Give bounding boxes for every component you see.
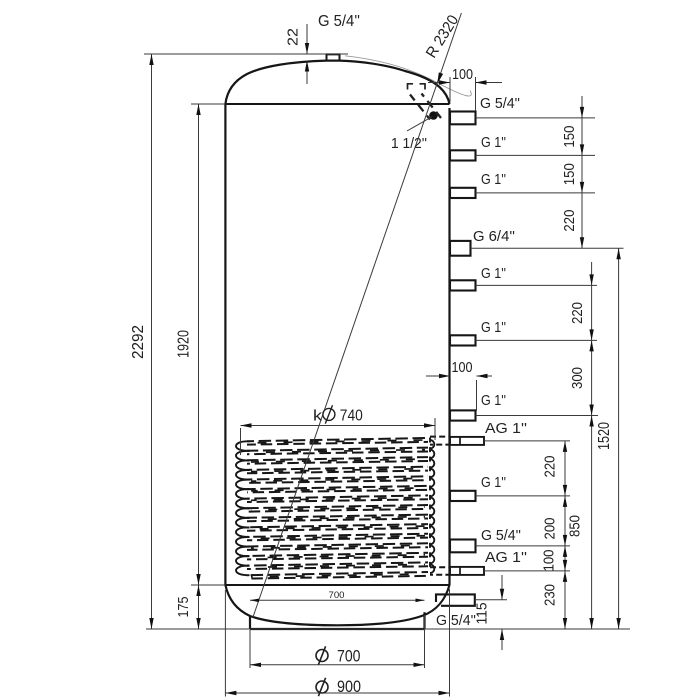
svg-text:G 1'': G 1'' <box>481 171 506 188</box>
svg-text:G 6/4'': G 6/4'' <box>473 228 515 245</box>
svg-text:300: 300 <box>569 367 586 389</box>
svg-text:G 1'': G 1'' <box>481 134 506 151</box>
svg-text:1920: 1920 <box>176 330 193 358</box>
svg-text:1 1/2'': 1 1/2'' <box>391 135 427 152</box>
svg-text:200: 200 <box>542 518 559 540</box>
svg-text:k: k <box>313 408 323 425</box>
svg-text:220: 220 <box>569 302 586 324</box>
svg-text:220: 220 <box>561 210 578 232</box>
svg-text:G 5/4'': G 5/4'' <box>480 95 520 112</box>
svg-text:100: 100 <box>452 66 473 83</box>
svg-text:150: 150 <box>561 126 578 148</box>
svg-text:220: 220 <box>542 456 559 478</box>
svg-text:G 1'': G 1'' <box>481 319 506 336</box>
svg-text:150: 150 <box>561 163 578 185</box>
svg-text:740: 740 <box>340 408 363 425</box>
svg-text:850: 850 <box>567 515 584 537</box>
svg-text:G 1'': G 1'' <box>481 474 506 491</box>
svg-text:AG 1'': AG 1'' <box>485 549 527 566</box>
svg-text:700: 700 <box>337 648 361 666</box>
svg-text:G 5/4'': G 5/4'' <box>481 527 521 544</box>
svg-text:115: 115 <box>474 603 491 625</box>
svg-text:100: 100 <box>452 359 473 376</box>
svg-text:700: 700 <box>329 590 345 601</box>
svg-text:175: 175 <box>175 597 192 618</box>
svg-text:1520: 1520 <box>596 422 613 450</box>
svg-text:AG 1'': AG 1'' <box>485 420 527 437</box>
svg-text:100: 100 <box>541 550 558 572</box>
svg-text:G 1'': G 1'' <box>481 392 506 409</box>
svg-text:2292: 2292 <box>130 325 147 359</box>
svg-text:22: 22 <box>285 28 302 46</box>
svg-text:G 5/4'': G 5/4'' <box>318 13 360 30</box>
svg-text:900: 900 <box>337 678 361 696</box>
svg-text:230: 230 <box>542 584 559 606</box>
svg-text:G 5/4'': G 5/4'' <box>436 612 476 629</box>
svg-text:G 1'': G 1'' <box>481 265 506 282</box>
